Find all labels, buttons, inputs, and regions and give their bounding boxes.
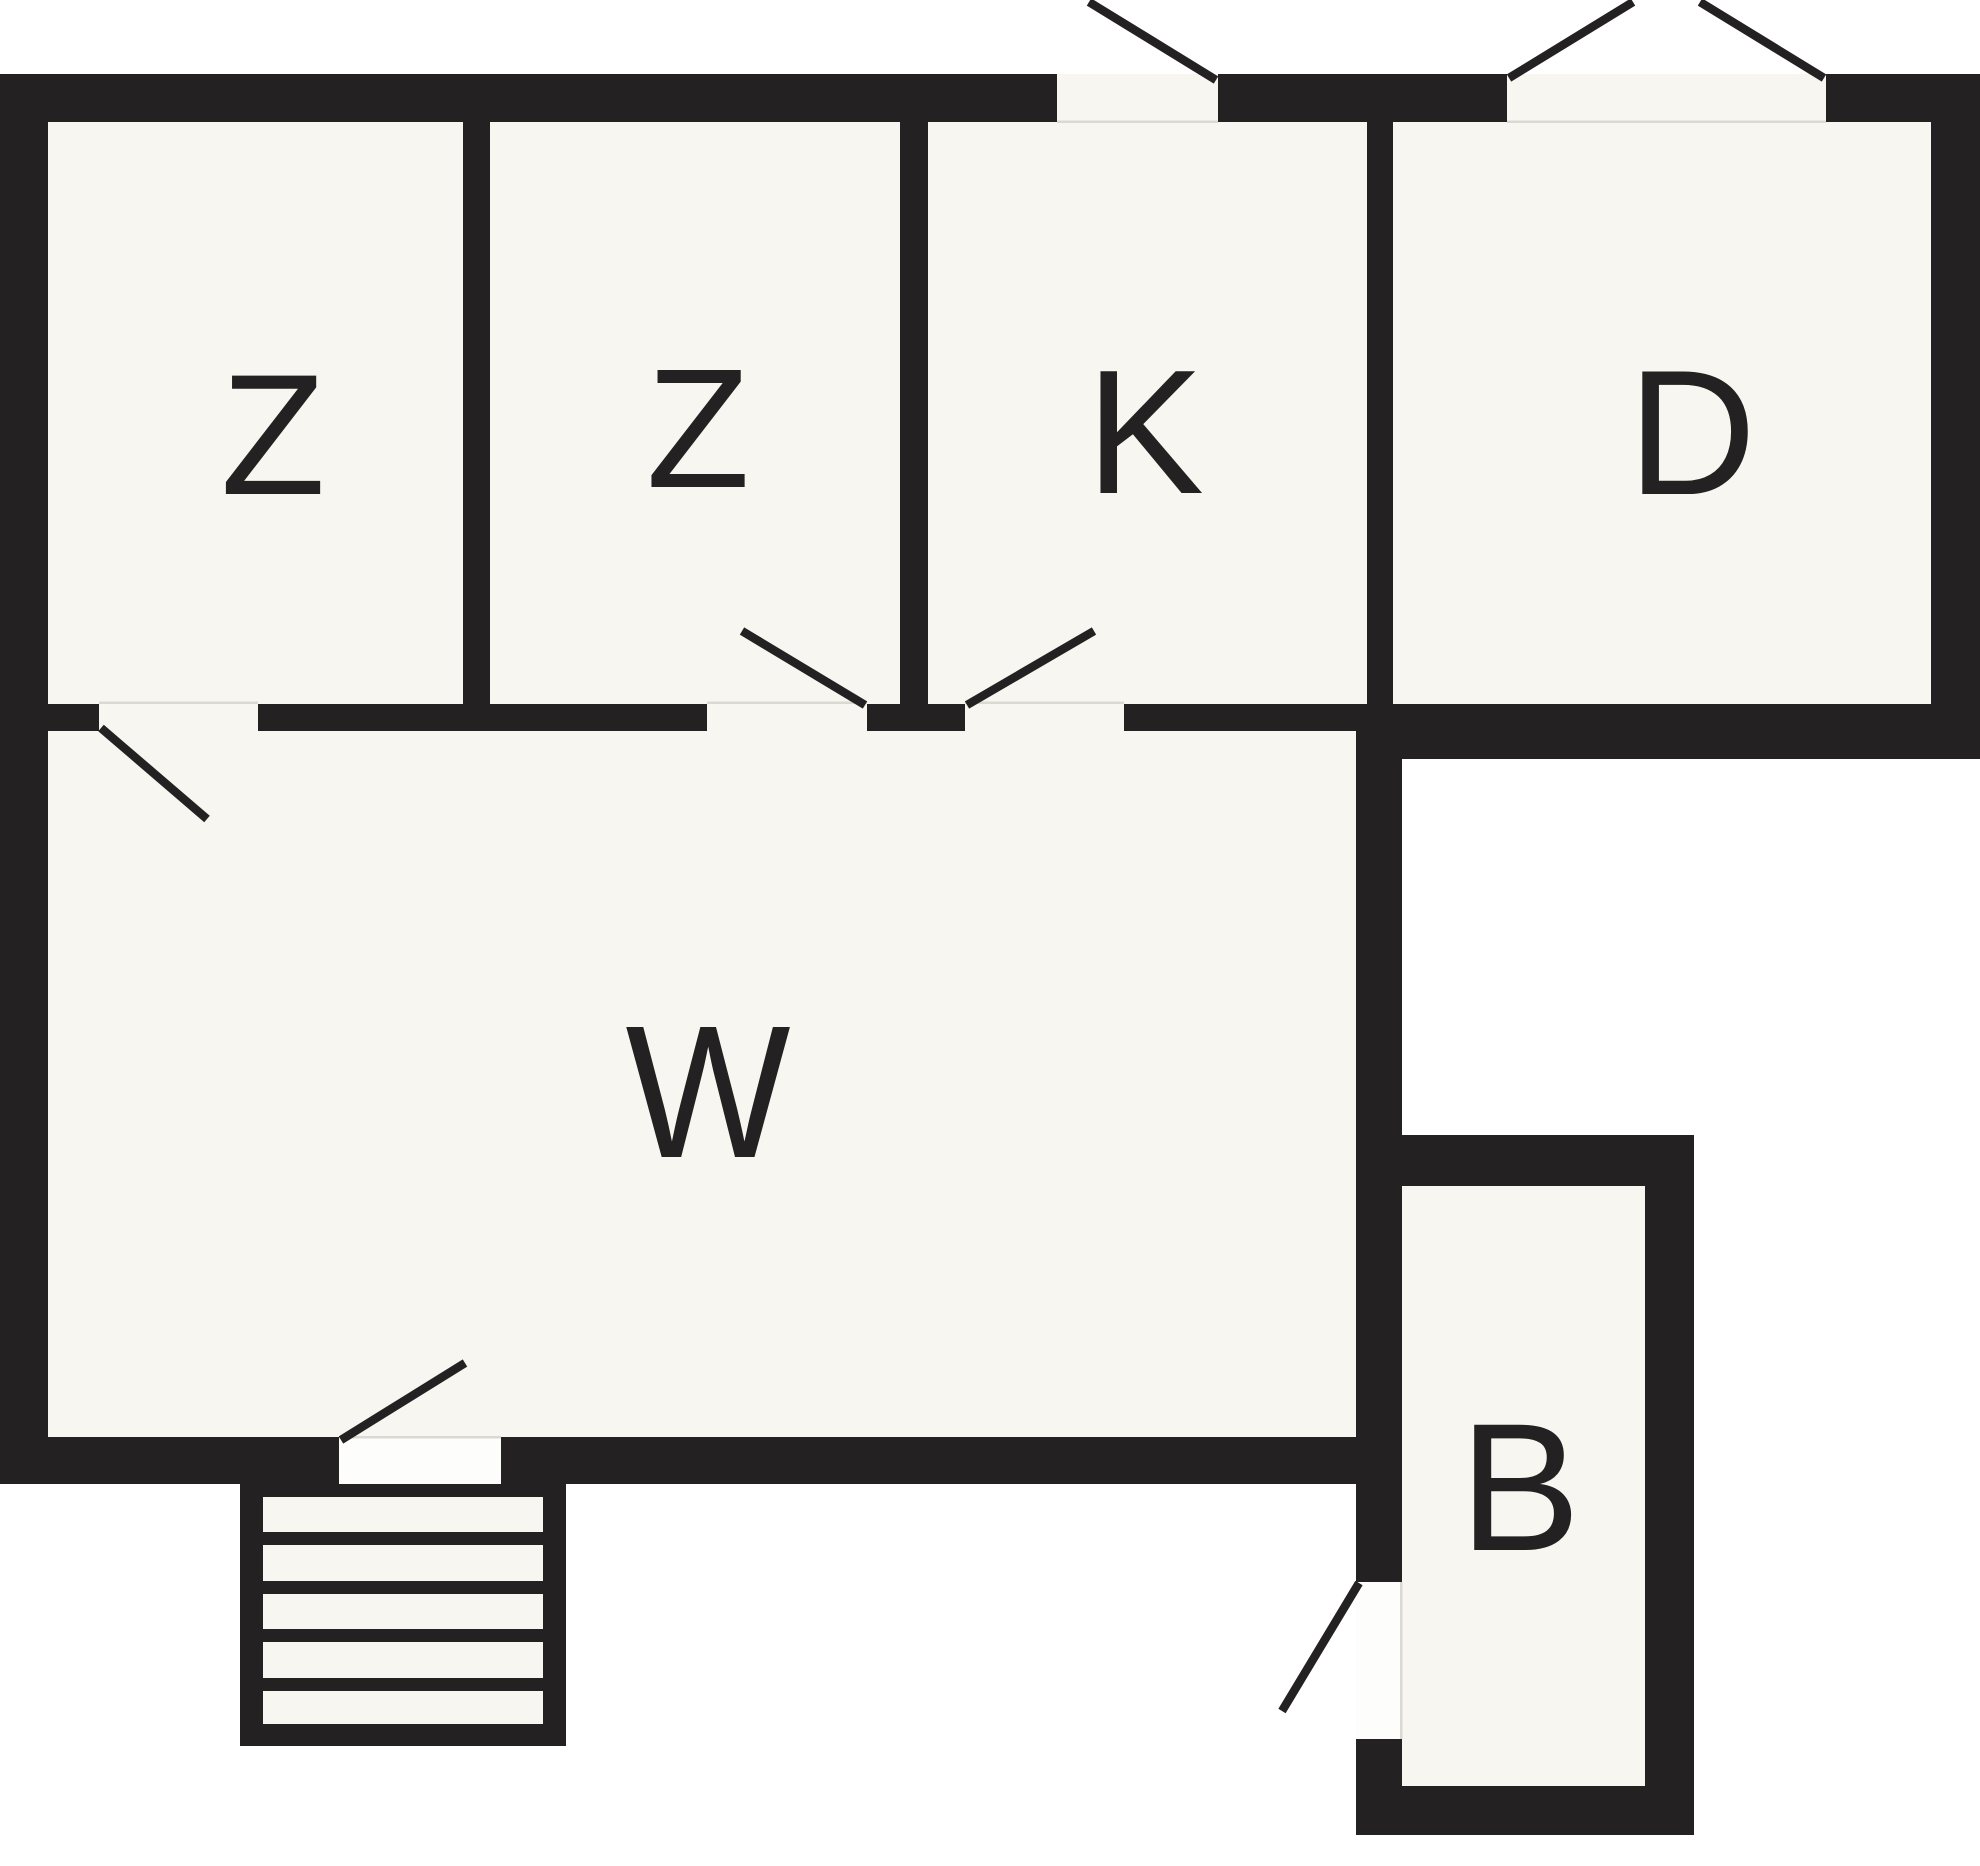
svg-text:Z: Z	[220, 339, 325, 531]
svg-text:K: K	[1086, 333, 1204, 531]
svg-text:B: B	[1459, 1385, 1580, 1589]
svg-text:Z: Z	[646, 334, 750, 524]
svg-text:D: D	[1628, 333, 1757, 532]
svg-text:W: W	[626, 987, 791, 1198]
